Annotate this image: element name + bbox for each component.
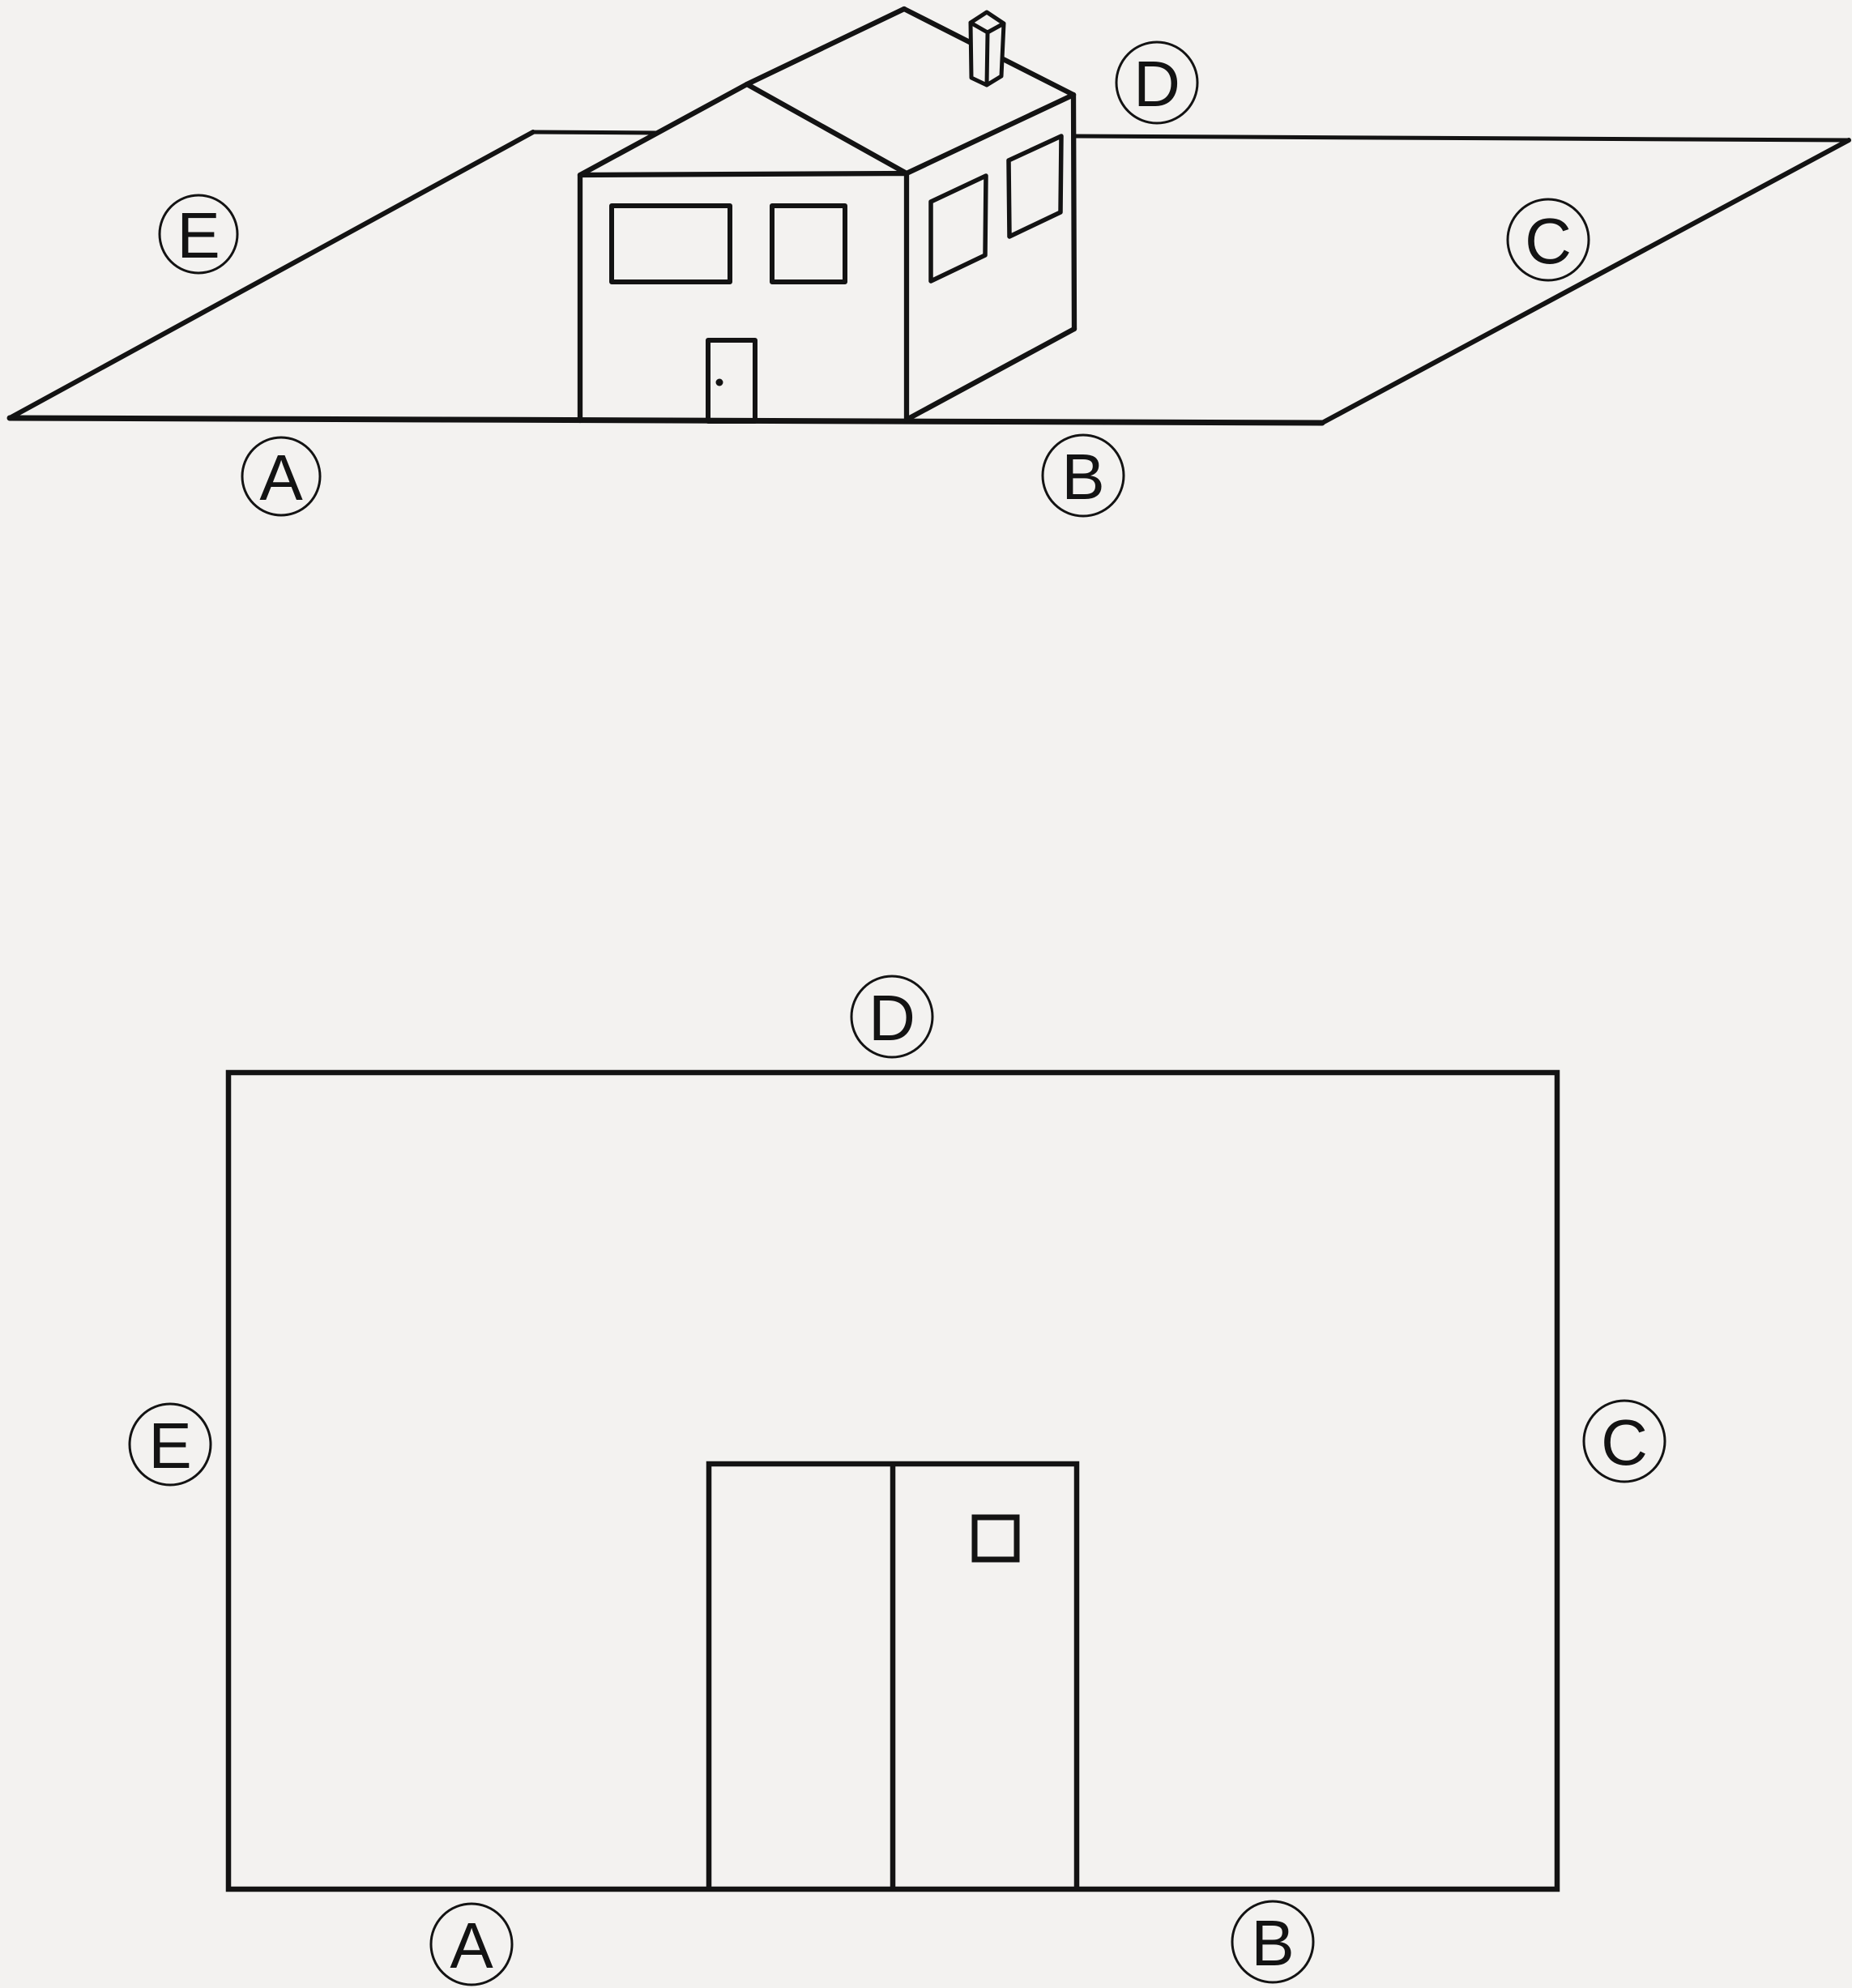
svg-text:B: B [1251,1907,1294,1979]
svg-text:D: D [868,982,915,1054]
svg-text:A: A [450,1909,493,1982]
svg-text:D: D [1133,48,1180,120]
svg-text:C: C [1525,205,1572,277]
svg-text:E: E [177,199,220,271]
svg-text:C: C [1601,1406,1648,1478]
svg-text:B: B [1061,441,1104,513]
svg-text:A: A [259,442,303,514]
svg-text:E: E [148,1410,191,1482]
